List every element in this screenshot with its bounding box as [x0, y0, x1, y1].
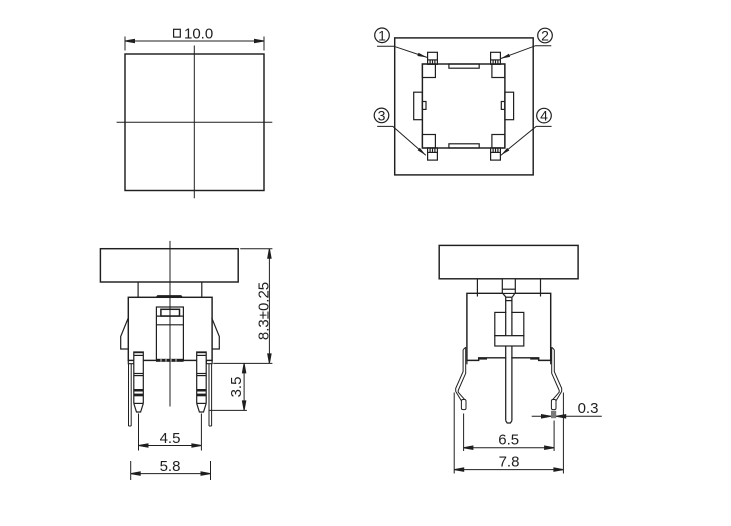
svg-text:10.0: 10.0	[184, 25, 213, 42]
svg-text:0.3: 0.3	[578, 400, 599, 417]
svg-text:1: 1	[378, 27, 386, 43]
svg-text:2: 2	[541, 28, 549, 44]
svg-text:7.8: 7.8	[499, 454, 520, 471]
svg-text:3: 3	[378, 107, 386, 123]
svg-text:4.5: 4.5	[160, 430, 181, 447]
svg-text:8.3±0.25: 8.3±0.25	[255, 282, 272, 340]
svg-text:4: 4	[540, 108, 548, 124]
svg-text:6.5: 6.5	[498, 432, 519, 449]
svg-text:3.5: 3.5	[228, 377, 245, 398]
svg-text:5.8: 5.8	[160, 458, 181, 475]
